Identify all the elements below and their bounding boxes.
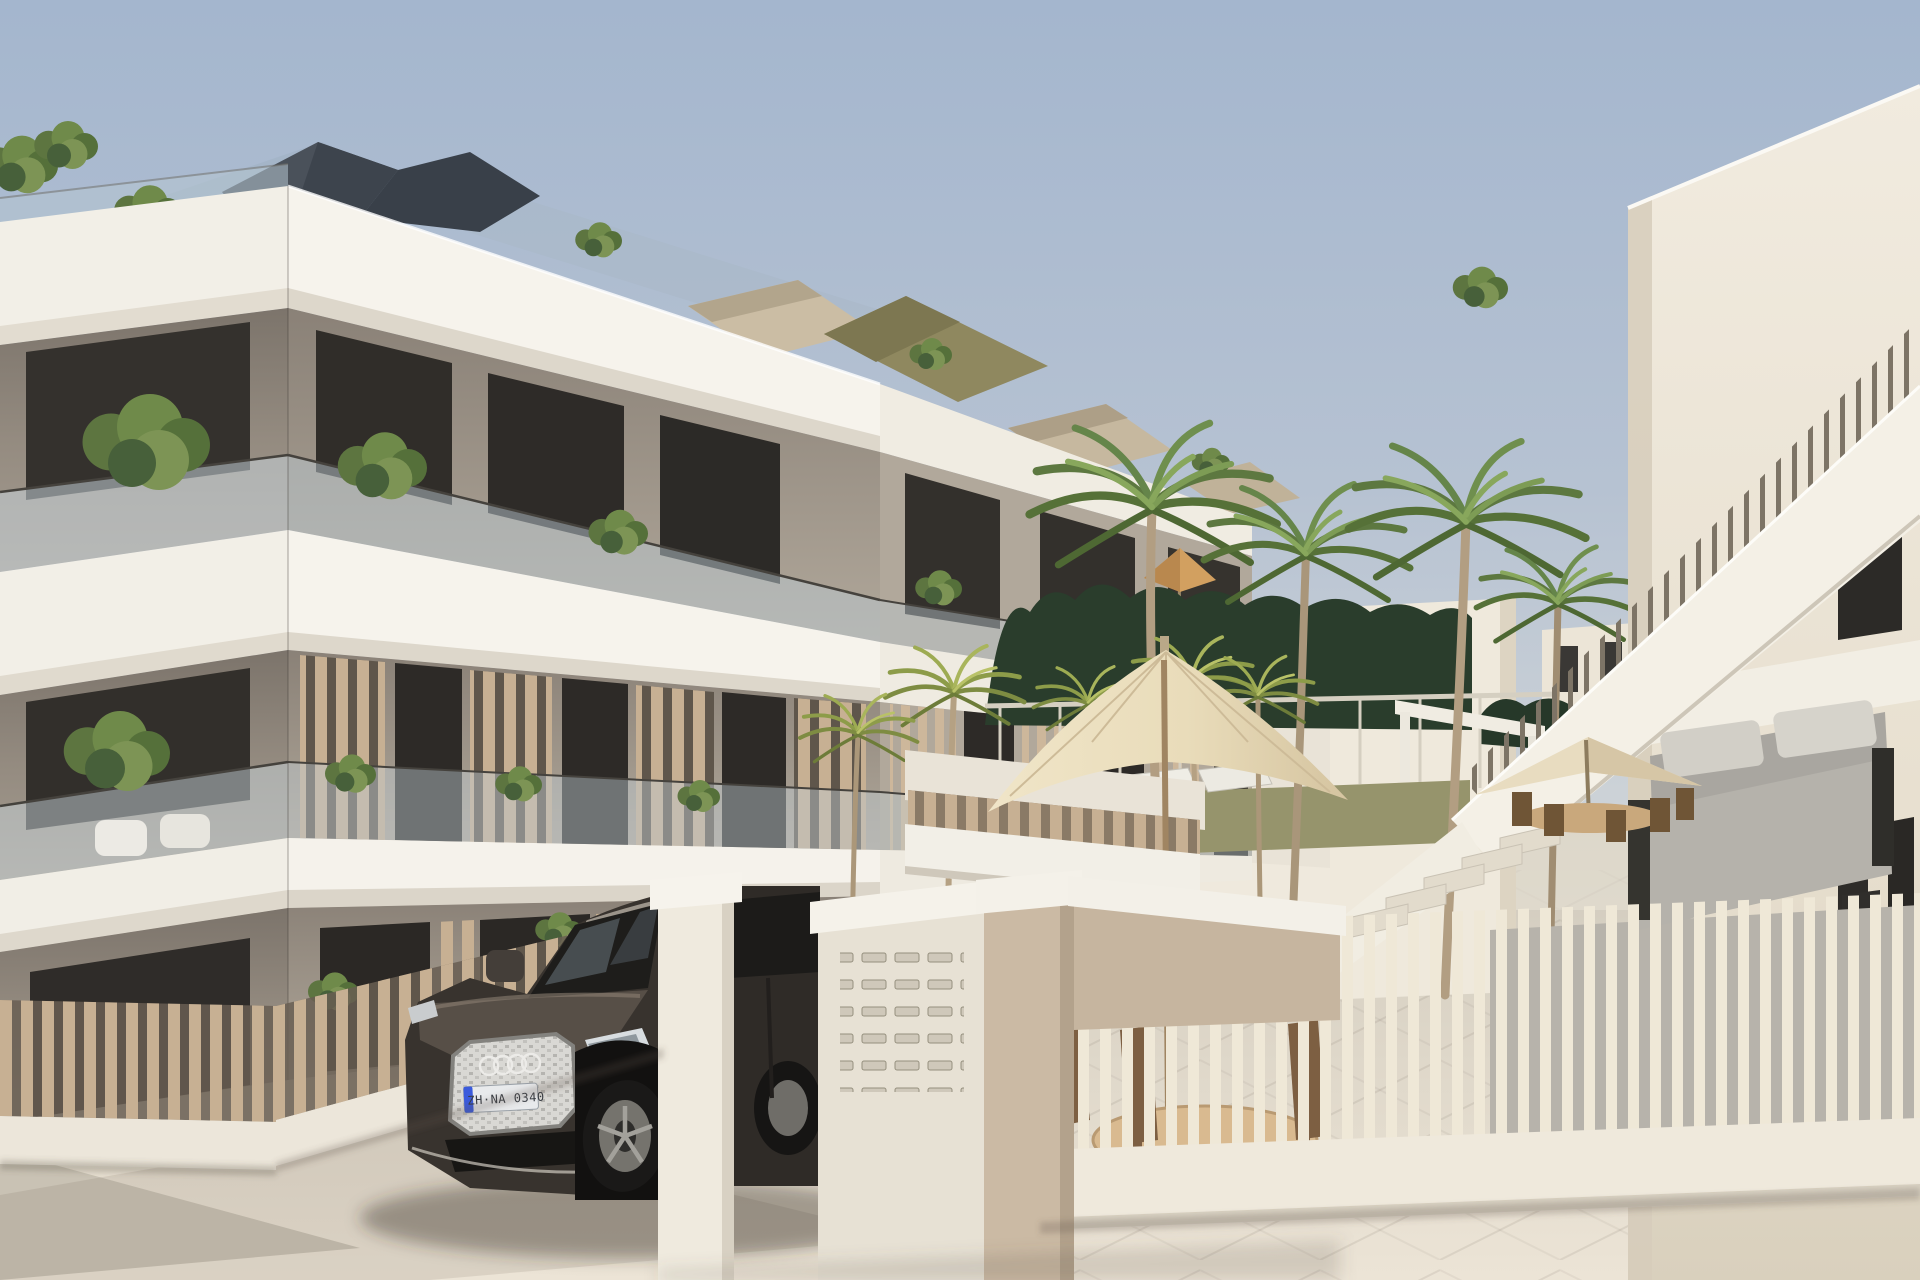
- mailbox-wall: [810, 880, 996, 1280]
- gate-pillar-white: [650, 872, 742, 1280]
- gate-pillar-beige: [976, 870, 1082, 1280]
- car-rear-section: [730, 886, 822, 1186]
- mail-slots-panel: [840, 950, 964, 1092]
- render-canvas: ZH·NA 0340: [0, 0, 1920, 1280]
- tan-fence-left: [0, 1000, 276, 1170]
- side-mirror: [486, 950, 524, 982]
